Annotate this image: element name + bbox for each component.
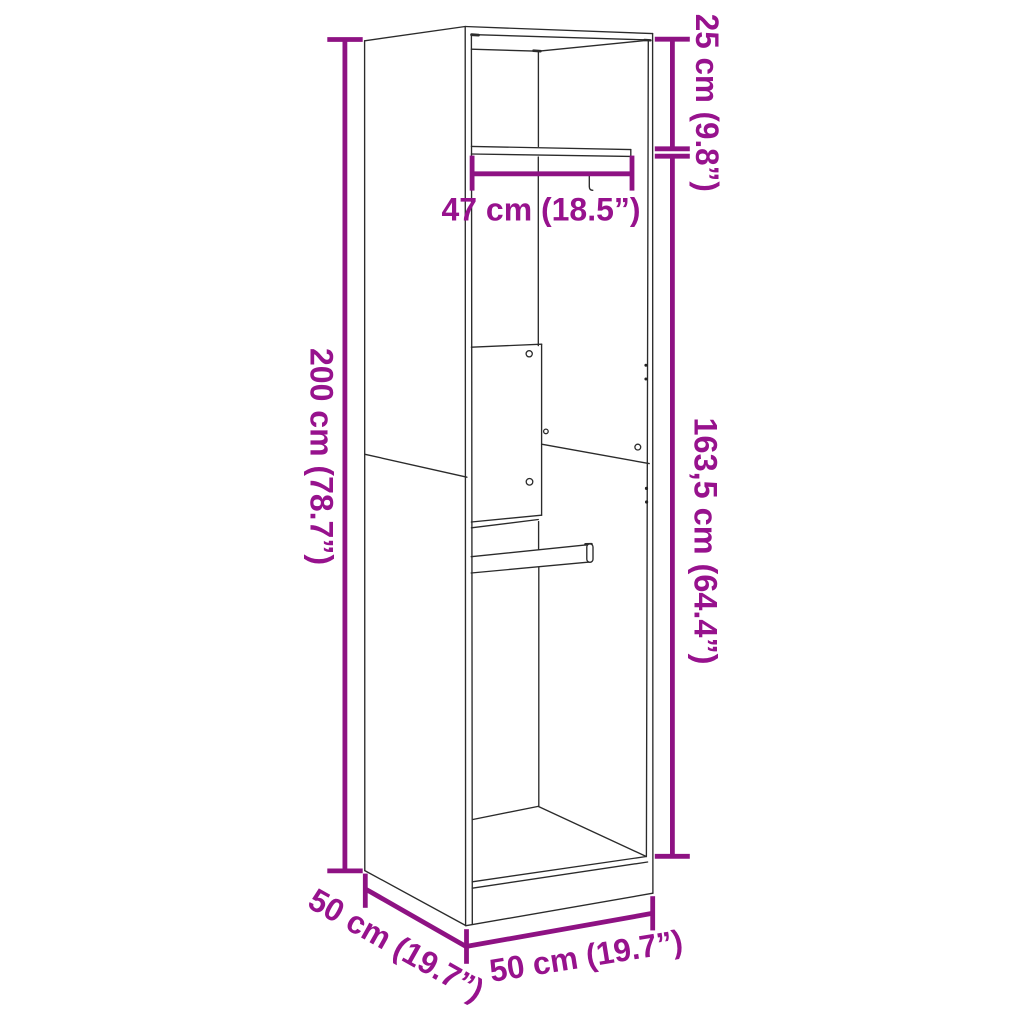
svg-text:163,5 cm (64.4”): 163,5 cm (64.4”) [688, 418, 724, 665]
svg-text:47 cm (18.5”): 47 cm (18.5”) [442, 192, 641, 228]
svg-text:200 cm (78.7”): 200 cm (78.7”) [304, 348, 340, 565]
svg-text:25 cm (9.8”): 25 cm (9.8”) [689, 14, 725, 192]
